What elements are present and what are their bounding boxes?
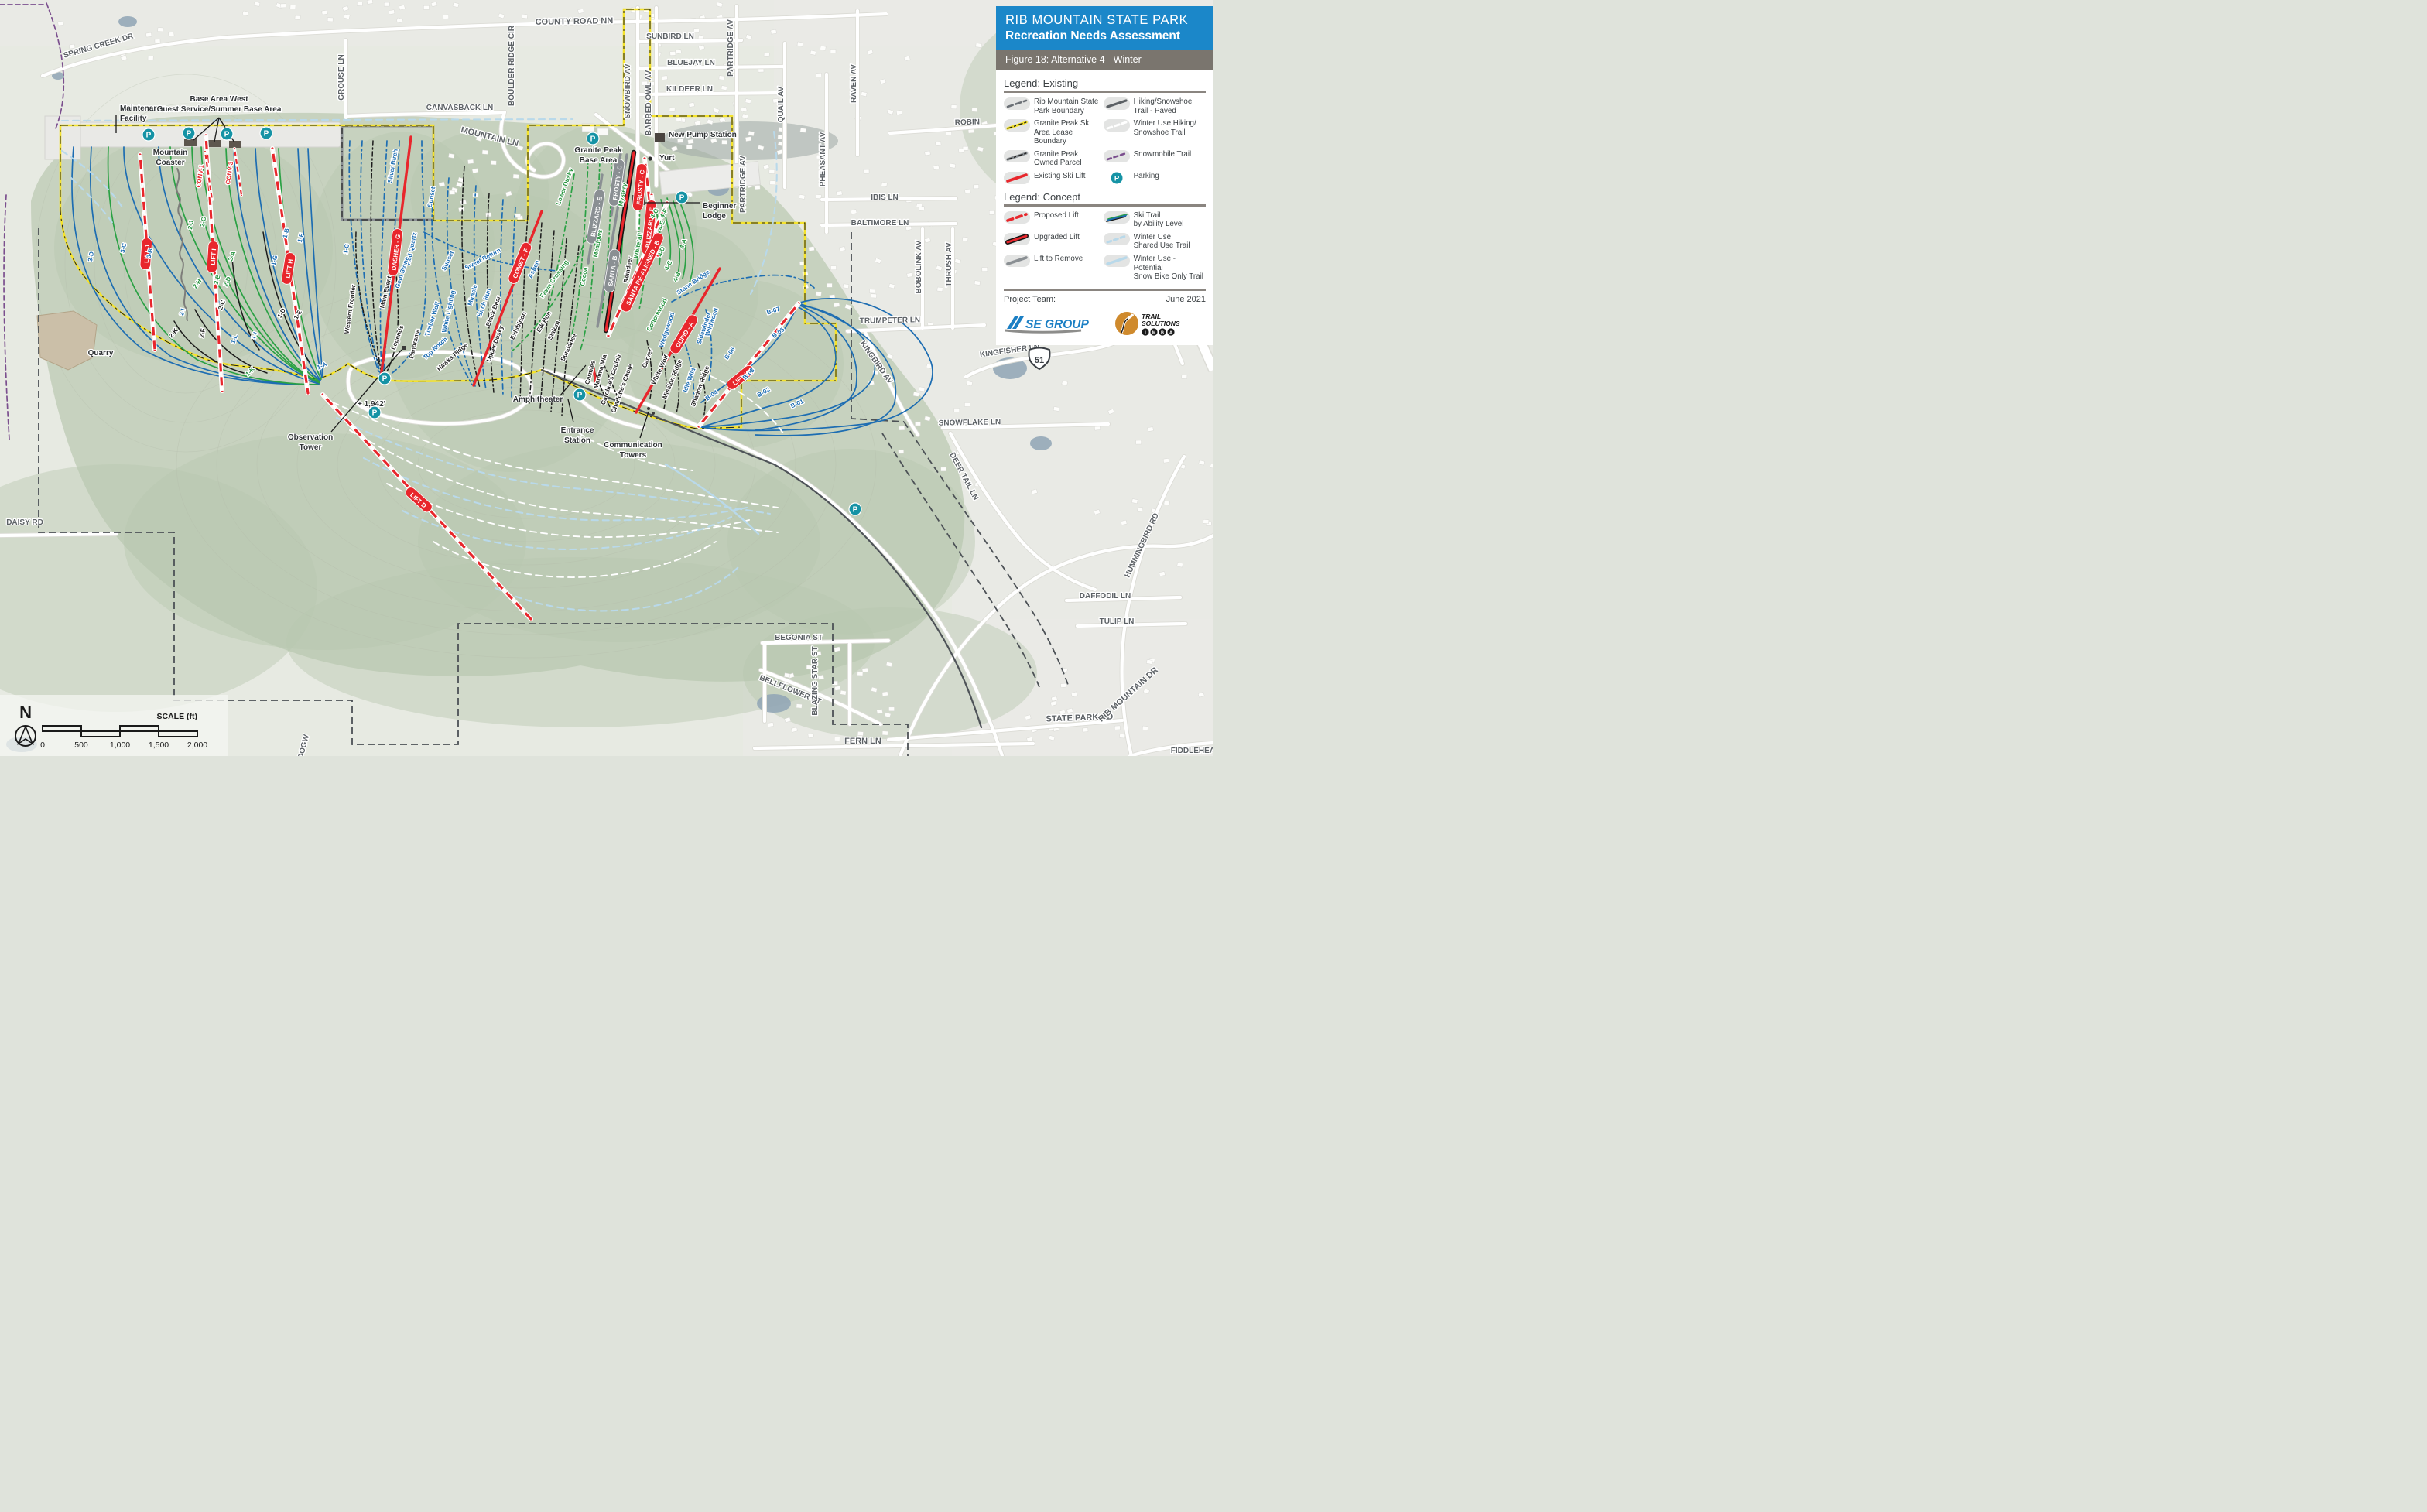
legend-item-label: Granite Peak Ski Area Lease Boundary <box>1034 119 1099 146</box>
svg-text:SNOWFLAKE LN: SNOWFLAKE LN <box>939 418 1001 427</box>
svg-text:P: P <box>679 193 685 202</box>
svg-text:BOBOLINK AV: BOBOLINK AV <box>915 240 923 293</box>
legend-item: Winter Use Shared Use Trail <box>1104 233 1206 251</box>
svg-text:N: N <box>19 703 32 722</box>
svg-text:0: 0 <box>40 741 45 750</box>
legend-existing-items: Rib Mountain State Park BoundaryHiking/S… <box>1004 97 1206 184</box>
svg-text:SE GROUP: SE GROUP <box>1025 318 1089 331</box>
trail-snowmobile-swatch <box>1104 150 1130 162</box>
svg-text:Facility: Facility <box>120 115 147 123</box>
svg-text:BEGONIA ST: BEGONIA ST <box>775 634 823 642</box>
report-subtitle: Recreation Needs Assessment <box>1005 29 1204 43</box>
title-legend-panel: RIB MOUNTAIN STATE PARK Recreation Needs… <box>996 6 1213 345</box>
lift-existing-swatch <box>1004 172 1030 184</box>
svg-text:TULIP LN: TULIP LN <box>1100 617 1135 626</box>
parking-swatch: P <box>1104 172 1130 184</box>
legend-item-label: Upgraded Lift <box>1034 233 1080 242</box>
lift-remove-swatch <box>1004 255 1030 267</box>
svg-text:FIDDLEHEAD: FIDDLEHEAD <box>1171 747 1213 755</box>
svg-text:SNOWBIRD AV: SNOWBIRD AV <box>624 63 632 118</box>
svg-text:500: 500 <box>74 741 88 750</box>
legend-item: Lift to Remove <box>1004 255 1099 282</box>
svg-text:P: P <box>372 409 378 417</box>
owned-parcel-swatch <box>1004 150 1030 162</box>
svg-text:Yurt: Yurt <box>659 154 675 162</box>
svg-text:P: P <box>1114 174 1119 183</box>
road <box>0 534 116 535</box>
svg-text:2,000: 2,000 <box>187 741 207 750</box>
svg-text:Tower: Tower <box>300 443 322 452</box>
svg-text:P: P <box>853 505 858 514</box>
svg-text:P: P <box>224 130 230 139</box>
se-group-logo: SE GROUP <box>1004 312 1101 335</box>
svg-text:P: P <box>577 391 583 399</box>
legend-item-label: Winter Use - Potential Snow Bike Only Tr… <box>1134 255 1206 282</box>
svg-text:Beginner: Beginner <box>703 202 736 210</box>
legend-item-label: Lift to Remove <box>1034 255 1083 264</box>
svg-text:P: P <box>382 375 388 383</box>
svg-text:SCALE (ft): SCALE (ft) <box>157 712 198 721</box>
legend-item-label: Winter Use Shared Use Trail <box>1134 233 1190 251</box>
svg-text:KILDEER LN: KILDEER LN <box>666 85 713 94</box>
svg-text:M: M <box>1152 330 1156 335</box>
legend-item: Snowmobile Trail <box>1104 150 1206 168</box>
legend-item: Rib Mountain State Park Boundary <box>1004 97 1099 115</box>
legend-item-label: Parking <box>1134 172 1159 181</box>
lift-upgraded-swatch <box>1004 233 1030 245</box>
title-block: RIB MOUNTAIN STATE PARK Recreation Needs… <box>996 6 1213 50</box>
park-boundary-swatch <box>1004 97 1030 110</box>
map-figure: FROSTY - CBLIZZARD - ESANTA - BDASHER - … <box>0 0 1213 756</box>
legend-item-label: Proposed Lift <box>1034 211 1079 221</box>
svg-text:Mountain: Mountain <box>153 149 187 157</box>
pump-station-building <box>655 133 665 142</box>
svg-text:BLAZING STAR ST: BLAZING STAR ST <box>811 646 820 715</box>
communication-tower-marker <box>652 412 655 415</box>
svg-text:Amphitheater: Amphitheater <box>513 395 563 404</box>
svg-text:P: P <box>264 129 269 138</box>
svg-text:Entrance: Entrance <box>561 426 594 435</box>
trail-paved-swatch <box>1104 97 1130 110</box>
maintenance-building <box>45 116 80 159</box>
svg-text:1,500: 1,500 <box>149 741 169 750</box>
svg-text:LIFT I: LIFT I <box>210 248 217 265</box>
svg-text:Observation: Observation <box>288 433 333 442</box>
svg-text:QUAIL AV: QUAIL AV <box>777 86 786 122</box>
svg-text:TRUMPETER LN: TRUMPETER LN <box>860 316 921 325</box>
legend-item-label: Winter Use Hiking/ Snowshoe Trail <box>1134 119 1196 137</box>
legend-concept-items: Proposed LiftSki Trail by Ability LevelU… <box>1004 211 1206 282</box>
trail-solutions-imba-logo: TRAIL SOLUTIONS IMBA <box>1114 310 1206 337</box>
svg-text:Base Area West: Base Area West <box>190 95 248 104</box>
legend-item: Proposed Lift <box>1004 211 1099 229</box>
ski-trail-swatch <box>1104 211 1130 224</box>
lift-label: LIFT I <box>207 241 219 273</box>
svg-text:RAVEN AV: RAVEN AV <box>850 64 858 103</box>
svg-text:Communication: Communication <box>604 441 662 450</box>
base-building <box>229 141 241 148</box>
trail-shared-swatch <box>1104 233 1130 245</box>
yurt-marker <box>648 156 652 160</box>
svg-text:BARRED OWL AV: BARRED OWL AV <box>645 70 653 136</box>
svg-text:COUNTY ROAD NN: COUNTY ROAD NN <box>536 16 614 27</box>
pond <box>1030 436 1052 450</box>
svg-text:GROUSE LN: GROUSE LN <box>337 54 346 100</box>
base-building <box>184 139 197 146</box>
svg-text:Base Area: Base Area <box>580 156 618 165</box>
trail-winter-swatch <box>1104 119 1130 132</box>
legend-item: Existing Ski Lift <box>1004 172 1099 184</box>
legend-item: Granite Peak Ski Area Lease Boundary <box>1004 119 1099 146</box>
lease-boundary-swatch <box>1004 119 1030 132</box>
svg-text:BOULDER RIDGE CIR: BOULDER RIDGE CIR <box>508 25 516 106</box>
svg-text:Coaster: Coaster <box>156 159 184 167</box>
svg-text:Granite Peak: Granite Peak <box>574 146 622 155</box>
pond <box>757 694 791 713</box>
svg-text:51: 51 <box>1035 356 1044 365</box>
legend-item: Winter Use - Potential Snow Bike Only Tr… <box>1104 255 1206 282</box>
svg-text:CANVASBACK LN: CANVASBACK LN <box>426 104 493 112</box>
svg-text:A: A <box>1169 330 1172 335</box>
legend-item-label: Granite Peak Owned Parcel <box>1034 150 1082 168</box>
park-title: RIB MOUNTAIN STATE PARK <box>1005 13 1204 28</box>
legend-existing-heading: Legend: Existing <box>1004 77 1206 93</box>
svg-text:Quarry: Quarry <box>88 349 114 357</box>
svg-text:Guest Service/Summer Base Area: Guest Service/Summer Base Area <box>157 105 282 114</box>
legend-item: Granite Peak Owned Parcel <box>1004 150 1099 168</box>
svg-text:P: P <box>146 131 152 139</box>
svg-text:BALTIMORE LN: BALTIMORE LN <box>851 219 909 227</box>
map-date: June 2021 <box>1166 295 1206 304</box>
svg-text:New Pump Station: New Pump Station <box>669 131 737 139</box>
svg-text:SUNBIRD LN: SUNBIRD LN <box>646 32 694 41</box>
legend-body: Legend: Existing Rib Mountain State Park… <box>996 70 1213 345</box>
svg-text:PHEASANT AV: PHEASANT AV <box>819 132 827 186</box>
observation-tower-marker <box>402 346 406 350</box>
legend-concept-heading: Legend: Concept <box>1004 191 1206 207</box>
svg-text:DAFFODIL LN: DAFFODIL LN <box>1080 592 1131 600</box>
svg-text:P: P <box>187 129 192 138</box>
logos-row: SE GROUP TRAIL SOLUTIONS IMBA <box>1004 310 1206 337</box>
svg-text:ROBIN: ROBIN <box>955 118 981 127</box>
svg-text:B: B <box>1161 330 1164 335</box>
svg-text:Lodge: Lodge <box>703 212 726 221</box>
legend-item-label: Snowmobile Trail <box>1134 150 1192 159</box>
svg-text:Station: Station <box>564 436 590 445</box>
legend-item: Ski Trail by Ability Level <box>1104 211 1206 229</box>
legend-item-label: Hiking/Snowshoe Trail - Paved <box>1134 97 1193 115</box>
legend-item-label: Rib Mountain State Park Boundary <box>1034 97 1098 115</box>
figure-caption: Figure 18: Alternative 4 - Winter <box>996 50 1213 70</box>
legend-item: Hiking/Snowshoe Trail - Paved <box>1104 97 1206 115</box>
legend-item: Winter Use Hiking/ Snowshoe Trail <box>1104 119 1206 146</box>
project-team-label: Project Team: <box>1004 295 1056 304</box>
svg-text:DAISY RD: DAISY RD <box>6 518 43 527</box>
pond <box>118 16 137 27</box>
svg-text:THRUSH AV: THRUSH AV <box>945 242 953 287</box>
svg-text:PARTRIDGE AV: PARTRIDGE AV <box>739 156 748 213</box>
lift-proposed-swatch <box>1004 211 1030 224</box>
svg-text:FERN LN: FERN LN <box>844 737 881 746</box>
legend-item-label: Existing Ski Lift <box>1034 172 1085 181</box>
legend-item-label: Ski Trail by Ability Level <box>1134 211 1184 229</box>
legend-item: PParking <box>1104 172 1206 184</box>
svg-text:P: P <box>590 135 596 143</box>
trail-snowbike-swatch <box>1104 255 1130 267</box>
legend-item: Upgraded Lift <box>1004 233 1099 251</box>
svg-text:SOLUTIONS: SOLUTIONS <box>1142 320 1180 327</box>
svg-text:BLUEJAY LN: BLUEJAY LN <box>667 59 715 67</box>
svg-text:1,000: 1,000 <box>110 741 130 750</box>
svg-text:Towers: Towers <box>620 451 647 460</box>
svg-text:PARTRIDGE AV: PARTRIDGE AV <box>727 19 735 77</box>
project-team-row: Project Team: June 2021 <box>1004 289 1206 304</box>
communication-tower-marker <box>647 407 650 410</box>
svg-text:IBIS LN: IBIS LN <box>871 193 899 202</box>
